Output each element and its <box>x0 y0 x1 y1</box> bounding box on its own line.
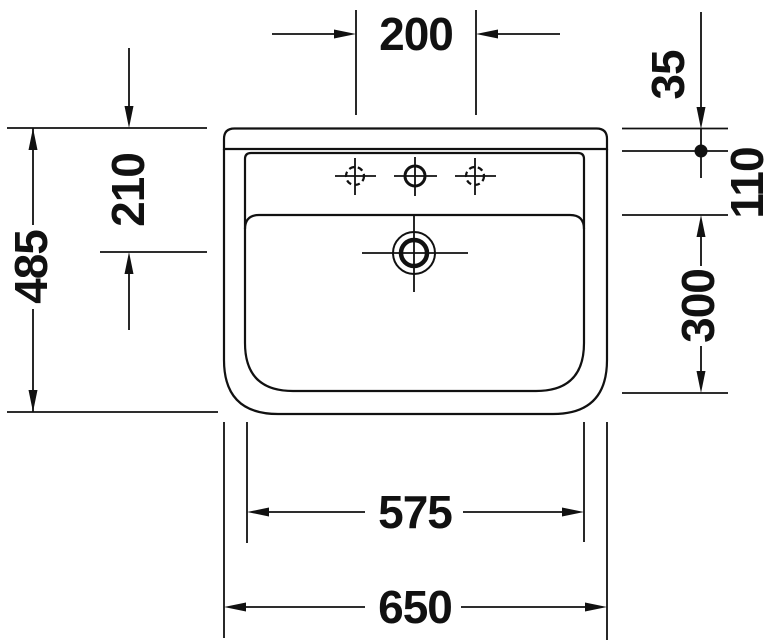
dim-overall-depth: 485 <box>5 128 57 412</box>
dim-faucet-hole-spacing: 200 <box>272 8 560 60</box>
dim-label-210: 210 <box>102 153 154 227</box>
drawing-canvas: 200 485 210 35 110 300 <box>0 0 784 642</box>
dim-top-to-drain: 210 <box>102 48 154 330</box>
faucet-hole-right <box>455 158 496 195</box>
dim-label-300: 300 <box>672 269 724 343</box>
dim-top-to-fixing: 35 <box>642 12 708 178</box>
dim-label-35: 35 <box>642 50 694 100</box>
washbasin-technical-drawing: 200 485 210 35 110 300 <box>0 0 784 642</box>
dim-label-485: 485 <box>5 230 57 304</box>
washbasin-rim <box>224 129 607 150</box>
faucet-hole-left <box>335 158 376 195</box>
dim-overall-width: 650 <box>224 581 607 633</box>
faucet-hole-center <box>394 157 437 196</box>
dim-inner-width: 575 <box>247 486 584 538</box>
dim-bowl-depth: 300 <box>672 215 724 393</box>
dim-label-200: 200 <box>379 8 453 60</box>
faucet-holes <box>335 157 496 196</box>
dim-fixing-to-bowl: 110 <box>721 147 773 218</box>
dim-label-650: 650 <box>378 581 452 633</box>
extension-lines <box>7 10 728 640</box>
dim-label-110: 110 <box>721 147 773 218</box>
drain-hole <box>362 215 468 292</box>
dim-label-575: 575 <box>378 486 452 538</box>
fixing-point-dot <box>695 145 708 158</box>
